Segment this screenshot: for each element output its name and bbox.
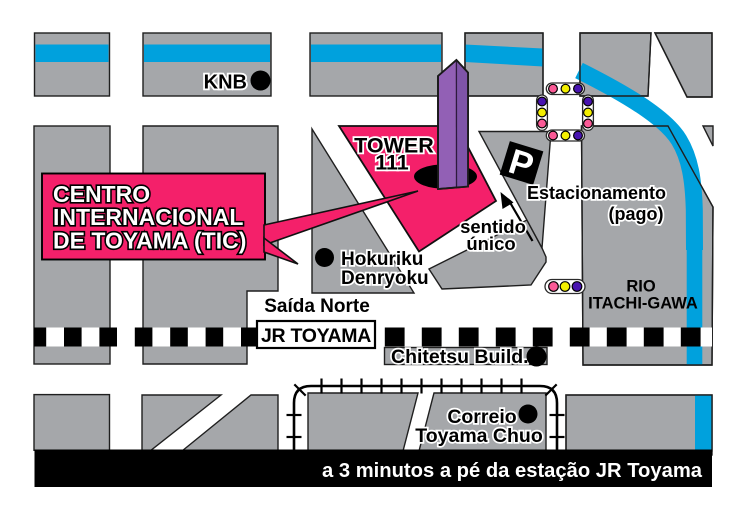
svg-text:Saída Norte: Saída Norte xyxy=(264,296,370,317)
svg-text:ITACHI-GAWA: ITACHI-GAWA xyxy=(588,295,698,313)
svg-text:(pago): (pago) xyxy=(609,204,664,224)
svg-text:111: 111 xyxy=(375,151,409,175)
svg-text:RIO: RIO xyxy=(626,278,656,296)
svg-text:Toyama Chuo: Toyama Chuo xyxy=(415,425,543,447)
svg-text:Chitetsu Build.: Chitetsu Build. xyxy=(391,346,529,368)
svg-text:a 3 minutos a pé da estação JR: a 3 minutos a pé da estação JR Toyama xyxy=(322,460,703,482)
svg-text:único: único xyxy=(466,233,515,254)
svg-text:INTERNACIONAL: INTERNACIONAL xyxy=(53,204,243,230)
svg-text:DE TOYAMA (TIC): DE TOYAMA (TIC) xyxy=(53,228,246,254)
svg-text:JR TOYAMA: JR TOYAMA xyxy=(261,325,371,347)
svg-text:Estacionamento: Estacionamento xyxy=(527,183,666,203)
svg-text:Hokuriku: Hokuriku xyxy=(341,249,423,270)
svg-text:Denryoku: Denryoku xyxy=(341,268,429,289)
svg-text:KNB: KNB xyxy=(204,72,247,94)
